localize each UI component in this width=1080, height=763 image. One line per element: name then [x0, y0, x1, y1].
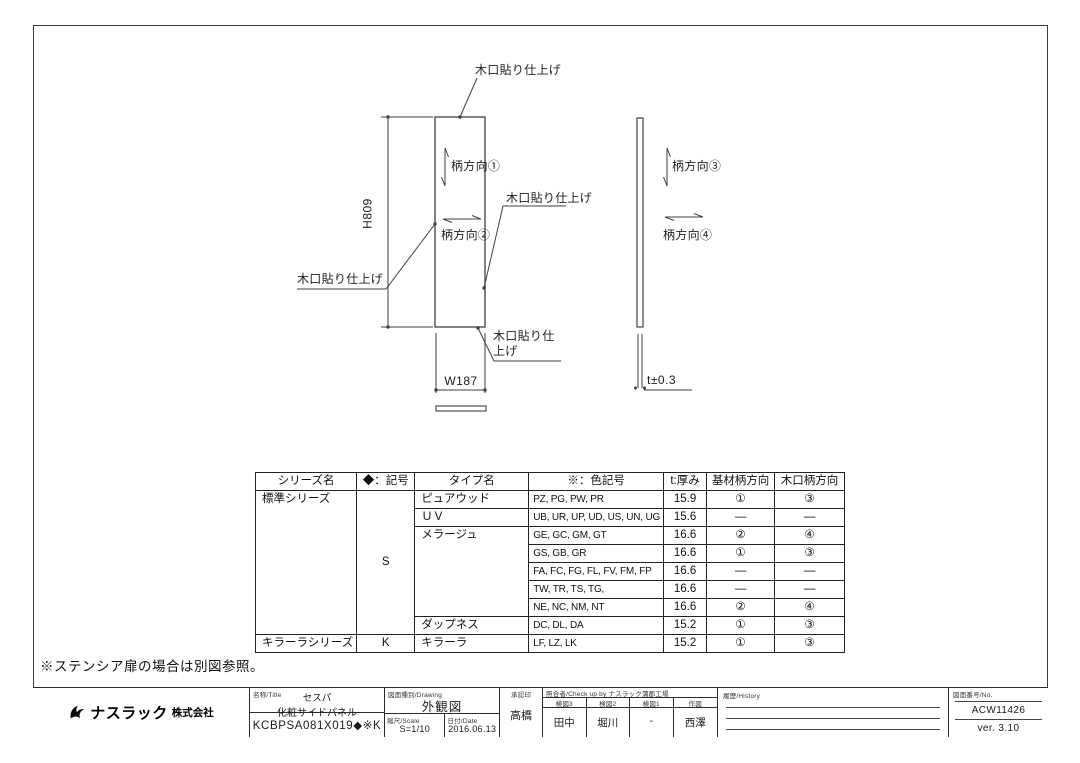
- approval-label: 承認印: [500, 688, 542, 699]
- base-grain-cell: ①: [707, 617, 775, 635]
- checker-name: 堀川: [587, 708, 630, 730]
- thickness-cell: 16.6: [664, 581, 707, 599]
- history-cell: 履歴/History: [718, 688, 949, 737]
- checker-name: 西澤: [674, 708, 718, 730]
- scale-cell: 縮尺/Scale S=1/10: [385, 714, 445, 737]
- thickness-cell: 16.6: [664, 527, 707, 545]
- checker-label: 検図1: [630, 698, 673, 708]
- thickness-cell: 16.6: [664, 563, 707, 581]
- company-suffix: 株式会社: [172, 705, 214, 720]
- checkers-label: 照合者/Check up by ナスラック蒲郡工場: [543, 688, 717, 698]
- type-cell: キラーラ: [415, 635, 529, 653]
- title-cell: 名称/Title セスパ 化粧サイドパネル KCBPSA081X019◆※K: [250, 688, 385, 737]
- nasluck-logo-icon: [68, 704, 86, 722]
- thickness-dimension-text: t±0.3: [647, 373, 676, 387]
- thickness-cell: 16.6: [664, 599, 707, 617]
- checkers-cell: 照合者/Check up by ナスラック蒲郡工場 検図3 田中 検図2 堀川 …: [543, 688, 718, 737]
- spec-table-header-row: シリーズ名 ◆：記号 タイプ名 ※：色記号 t:厚み 基材柄方向 木口柄方向: [256, 473, 845, 491]
- edge-grain-cell: ④: [775, 599, 845, 617]
- symbol-cell: S: [357, 491, 415, 635]
- col-header-symbol: ◆：記号: [357, 473, 415, 491]
- base-grain-cell: ①: [707, 491, 775, 509]
- checker-column: 検図1 -: [630, 698, 674, 737]
- grain-direction-1-label: 柄方向①: [451, 160, 500, 173]
- company-name: ナスラック: [90, 702, 168, 723]
- colorcode-cell: PZ, PG, PW, PR: [529, 491, 664, 509]
- thickness-cell: 16.6: [664, 545, 707, 563]
- width-dimension-text: W187: [436, 374, 486, 388]
- edge-band-label-top: 木口貼り仕上げ: [475, 64, 561, 77]
- thickness-cell: 15.6: [664, 509, 707, 527]
- drawing-number-cell: 図面番号/No. ACW11426 ver. 3.10: [949, 688, 1048, 737]
- edge-grain-cell: ③: [775, 545, 845, 563]
- col-header-series: シリーズ名: [256, 473, 357, 491]
- thickness-cell: 15.9: [664, 491, 707, 509]
- colorcode-cell: GE, GC, GM, GT: [529, 527, 664, 545]
- history-line: [726, 729, 940, 730]
- history-line: [726, 707, 940, 708]
- base-grain-cell: ①: [707, 545, 775, 563]
- edge-grain-cell: ―: [775, 581, 845, 599]
- checker-label: 作図: [674, 698, 718, 708]
- edge-grain-cell: ③: [775, 491, 845, 509]
- title-label: 名称/Title: [253, 689, 281, 699]
- checker-column: 検図3 田中: [543, 698, 587, 737]
- drawing-type-label: 図面種別/Drawing: [388, 689, 442, 699]
- edge-grain-cell: ④: [775, 527, 845, 545]
- stencia-note: ※ステンシア扉の場合は別図参照。: [40, 655, 264, 675]
- company-cell: ナスラック株式会社: [33, 688, 250, 737]
- type-cell: メラージュ: [415, 527, 529, 617]
- colorcode-cell: LF, LZ, LK: [529, 635, 664, 653]
- base-grain-cell: ②: [707, 527, 775, 545]
- thickness-cell: 15.2: [664, 635, 707, 653]
- base-grain-cell: ①: [707, 635, 775, 653]
- colorcode-cell: UB, UR, UP, UD, US, UN, UG: [529, 509, 664, 527]
- symbol-cell: K: [357, 635, 415, 653]
- col-header-thickness: t:厚み: [664, 473, 707, 491]
- drawing-number-label: 図面番号/No.: [953, 689, 993, 699]
- version-value: ver. 3.10: [949, 723, 1048, 734]
- date-cell: 日付/Date 2016.06.13: [445, 714, 499, 737]
- table-row: 標準シリーズ S ピュアウッド PZ, PG, PW, PR 15.9 ① ③: [256, 491, 845, 509]
- checker-column: 検図2 堀川: [587, 698, 631, 737]
- colorcode-cell: GS, GB, GR: [529, 545, 664, 563]
- approval-name: 高橋: [500, 699, 542, 723]
- checker-label: 検図3: [543, 698, 586, 708]
- type-cell: ＵＶ: [415, 509, 529, 527]
- colorcode-cell: TW, TR, TS, TG,: [529, 581, 664, 599]
- history-label: 履歴/History: [723, 690, 760, 700]
- checker-name: 田中: [543, 708, 586, 730]
- base-grain-cell: ②: [707, 599, 775, 617]
- series-cell: キラーラシリーズ: [256, 635, 357, 653]
- title-block: ナスラック株式会社 名称/Title セスパ 化粧サイドパネル KCBPSA08…: [33, 687, 1048, 737]
- number-divider: [955, 719, 1042, 720]
- colorcode-cell: NE, NC, NM, NT: [529, 599, 664, 617]
- base-grain-cell: ―: [707, 581, 775, 599]
- table-row: キラーラシリーズ K キラーラ LF, LZ, LK 15.2 ① ③: [256, 635, 845, 653]
- edge-grain-cell: ③: [775, 635, 845, 653]
- grain-direction-2-label: 柄方向②: [441, 229, 490, 242]
- colorcode-cell: FA, FC, FG, FL, FV, FM, FP: [529, 563, 664, 581]
- base-grain-cell: ―: [707, 509, 775, 527]
- edge-band-label-right: 木口貼り仕上げ: [506, 192, 592, 205]
- grain-direction-3-label: 柄方向③: [672, 160, 721, 173]
- series-cell: 標準シリーズ: [256, 491, 357, 635]
- number-divider: [955, 701, 1042, 702]
- col-header-type: タイプ名: [415, 473, 529, 491]
- checker-name: -: [630, 708, 673, 727]
- col-header-base-grain: 基材柄方向: [707, 473, 775, 491]
- drawing-type-cell: 図面種別/Drawing 外観図 縮尺/Scale S=1/10 日付/Date…: [385, 688, 500, 737]
- type-cell: ダップネス: [415, 617, 529, 635]
- edge-grain-cell: ―: [775, 563, 845, 581]
- thickness-cell: 15.2: [664, 617, 707, 635]
- edge-band-label-bottom: 木口貼り仕上げ: [493, 329, 559, 358]
- date-label: 日付/Date: [447, 715, 477, 725]
- base-grain-cell: ―: [707, 563, 775, 581]
- drawing-number-value: ACW11426: [949, 705, 1048, 716]
- approval-cell: 承認印 高橋: [500, 688, 543, 737]
- colorcode-cell: DC, DL, DA: [529, 617, 664, 635]
- history-line: [726, 718, 940, 719]
- edge-band-label-left: 木口貼り仕上げ: [297, 273, 383, 286]
- spec-table: シリーズ名 ◆：記号 タイプ名 ※：色記号 t:厚み 基材柄方向 木口柄方向 標…: [255, 472, 845, 653]
- grain-direction-4-label: 柄方向④: [663, 229, 712, 242]
- edge-grain-cell: ―: [775, 509, 845, 527]
- col-header-colorcode: ※：色記号: [529, 473, 664, 491]
- checker-column: 作図 西澤: [674, 698, 718, 737]
- col-header-edge-grain: 木口柄方向: [775, 473, 845, 491]
- edge-grain-cell: ③: [775, 617, 845, 635]
- checker-label: 検図2: [587, 698, 630, 708]
- product-name-line2: 化粧サイドパネル: [250, 704, 384, 719]
- height-dimension-text: H809: [361, 192, 374, 236]
- scale-label: 縮尺/Scale: [387, 715, 420, 725]
- type-cell: ピュアウッド: [415, 491, 529, 509]
